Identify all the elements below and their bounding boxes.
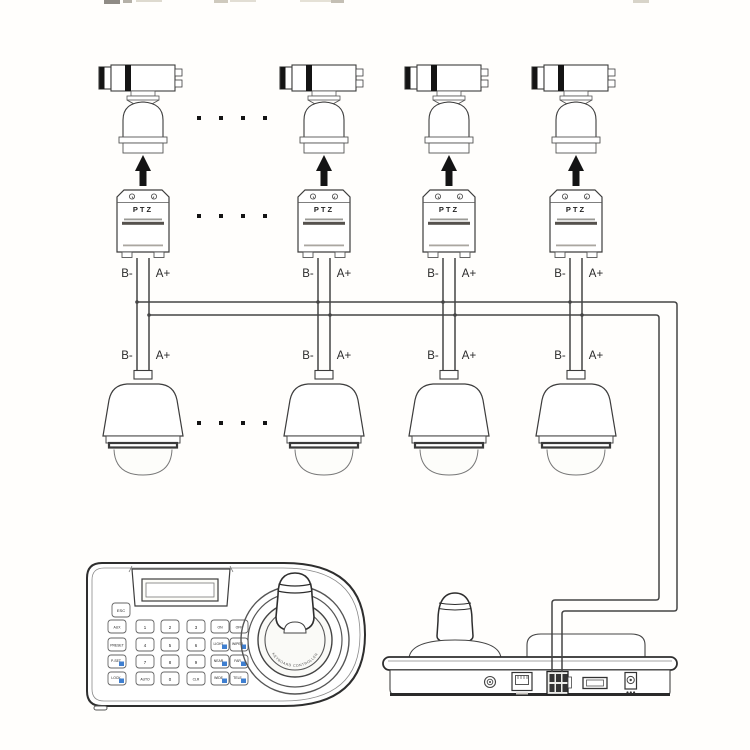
svg-text:CLR: CLR bbox=[193, 677, 200, 681]
wire-label-a: A+ bbox=[329, 350, 359, 363]
up-arrow-icon bbox=[316, 155, 332, 186]
rear-keyboard-hump bbox=[527, 634, 645, 658]
wire-label-a: A+ bbox=[454, 268, 484, 281]
dome-camera-icon bbox=[409, 371, 489, 476]
svg-text:FAR: FAR bbox=[234, 659, 241, 663]
svg-text:WIDE: WIDE bbox=[214, 676, 224, 680]
svg-text:TELE: TELE bbox=[233, 676, 242, 680]
ptz-decoder-icon bbox=[117, 190, 169, 258]
ptz-box-label: PTZ bbox=[434, 205, 464, 214]
wire-label-b: B- bbox=[418, 268, 448, 281]
rear-joystick-icon bbox=[409, 593, 501, 658]
wire-label-b: B- bbox=[293, 268, 323, 281]
dome-camera-icon bbox=[103, 371, 183, 476]
wire-label-b: B- bbox=[112, 350, 142, 363]
wire-label-b: B- bbox=[545, 350, 575, 363]
box-camera-icon bbox=[532, 65, 615, 153]
diagram-art: ESC AUX 1 2 bbox=[0, 0, 750, 750]
wire-label-b: B- bbox=[112, 268, 142, 281]
dome-camera-icon bbox=[536, 371, 616, 476]
wire-label-a: A+ bbox=[454, 350, 484, 363]
ptz-box-label: PTZ bbox=[309, 205, 339, 214]
esc-key: ESC bbox=[112, 603, 130, 617]
svg-text:NEAR: NEAR bbox=[214, 659, 224, 663]
clipped-caption-fragment bbox=[331, 0, 344, 3]
box-camera-icon bbox=[99, 65, 182, 153]
wire-label-a: A+ bbox=[148, 268, 178, 281]
wire-label-b: B- bbox=[418, 350, 448, 363]
round-connector-icon bbox=[485, 677, 496, 688]
ptz-box-label: PTZ bbox=[128, 205, 158, 214]
svg-text:PRESET: PRESET bbox=[110, 643, 124, 647]
svg-text:OFF: OFF bbox=[236, 625, 243, 629]
ptz-decoder-icon bbox=[550, 190, 602, 258]
up-arrow-icon bbox=[568, 155, 584, 186]
controller-deck bbox=[383, 657, 677, 670]
clipped-caption-fragment bbox=[633, 0, 649, 3]
ptz-box-label: PTZ bbox=[561, 205, 591, 214]
lcd-display bbox=[129, 566, 233, 606]
ellipsis-dots bbox=[197, 116, 267, 425]
svg-text:LOCK: LOCK bbox=[111, 676, 121, 680]
svg-text:LIGHT: LIGHT bbox=[214, 642, 224, 646]
up-arrow-icon bbox=[135, 155, 151, 186]
clipped-caption-fragment bbox=[136, 0, 162, 2]
rear-controller bbox=[383, 593, 677, 695]
wire-label-a: A+ bbox=[329, 268, 359, 281]
ptz-decoder-icon bbox=[423, 190, 475, 258]
box-camera-icon bbox=[280, 65, 363, 153]
usb-port-icon bbox=[583, 678, 607, 689]
ptz-decoder-icon bbox=[298, 190, 350, 258]
rs485-terminal-icon bbox=[547, 672, 572, 695]
dome-camera-icon bbox=[284, 371, 364, 476]
wire-label-b: B- bbox=[293, 350, 323, 363]
svg-text:ON: ON bbox=[217, 625, 223, 629]
wiring-diagram: { "colors": { "background": "#fffefc", "… bbox=[0, 0, 750, 750]
wire-label-a: A+ bbox=[148, 350, 178, 363]
box-camera-icon bbox=[405, 65, 488, 153]
wire-label-a: A+ bbox=[581, 350, 611, 363]
svg-text:AUX: AUX bbox=[114, 625, 122, 629]
svg-text:ESC: ESC bbox=[117, 608, 125, 613]
clipped-caption-fragment bbox=[230, 0, 256, 2]
up-arrow-icon bbox=[441, 155, 457, 186]
keyboard-controller: ESC AUX 1 2 bbox=[87, 563, 365, 710]
wire-label-a: A+ bbox=[581, 268, 611, 281]
clipped-caption-fragment bbox=[104, 0, 120, 4]
wire-label-b: B- bbox=[545, 268, 575, 281]
clipped-caption-fragment bbox=[123, 0, 132, 3]
svg-text:AUTO: AUTO bbox=[140, 677, 150, 681]
svg-text:P-SET: P-SET bbox=[111, 659, 121, 663]
clipped-caption-fragment bbox=[214, 0, 228, 3]
